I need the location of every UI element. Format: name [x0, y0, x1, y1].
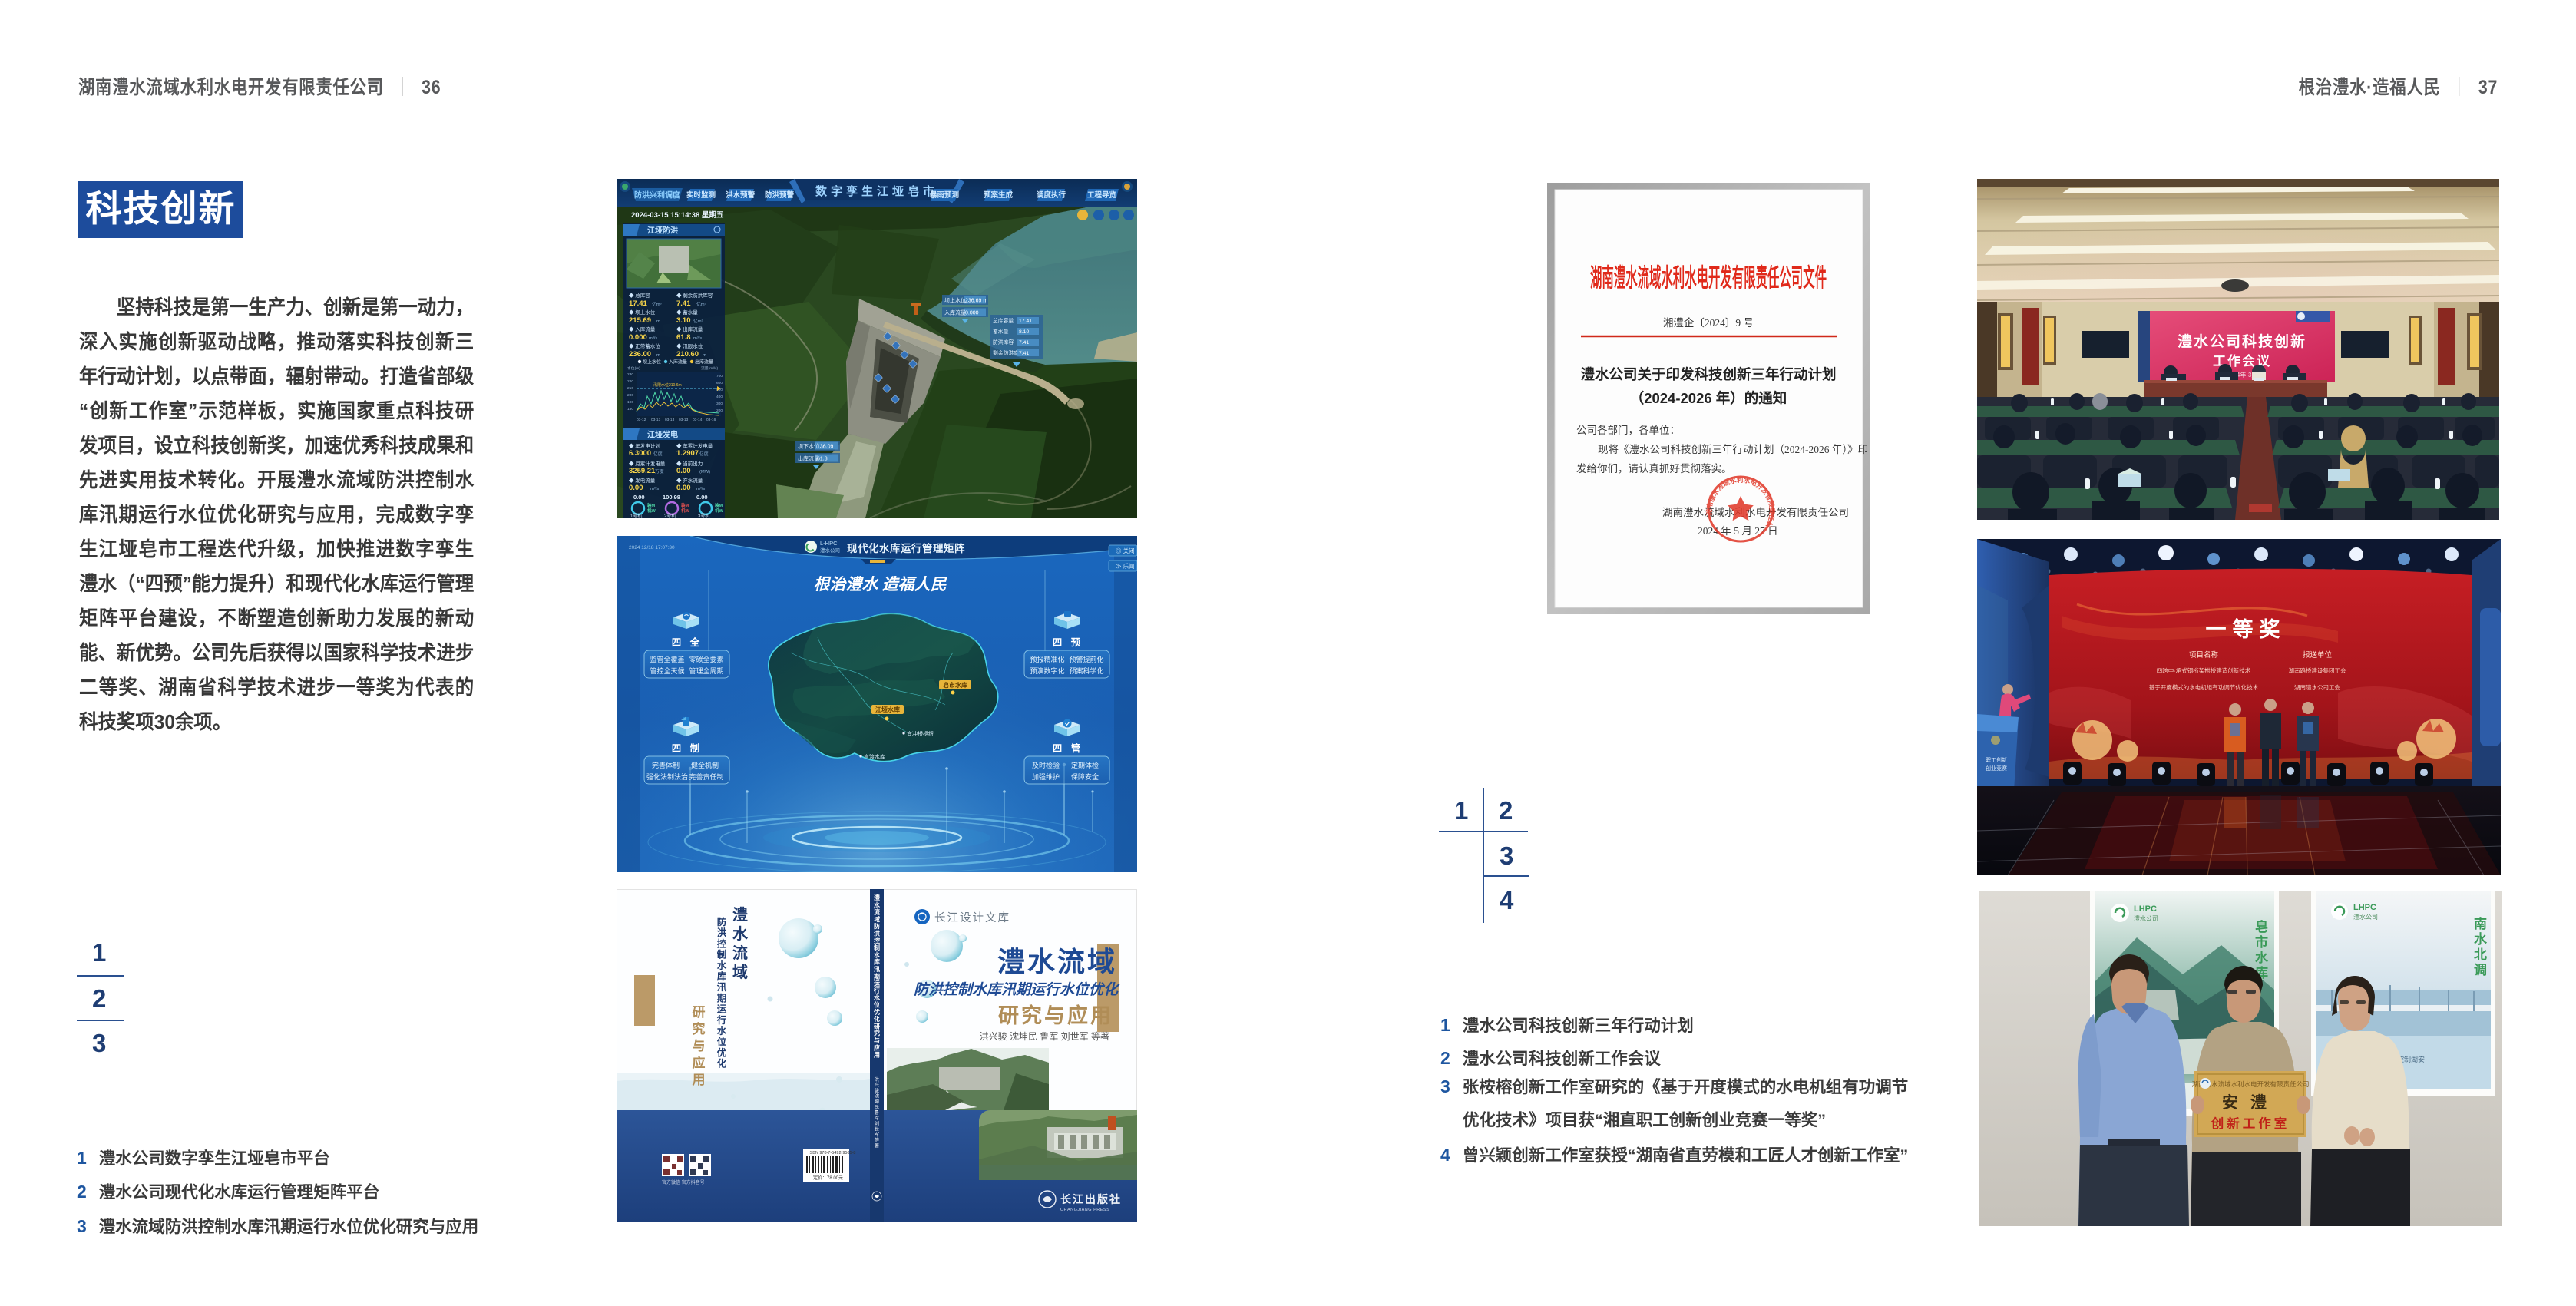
svg-text:1号机: 1号机: [630, 513, 642, 518]
svg-text:03-16: 03-16: [706, 418, 716, 422]
svg-text:03-13: 03-13: [665, 418, 675, 422]
svg-text:澧水公司: 澧水公司: [820, 547, 840, 554]
svg-text:机W: 机W: [680, 508, 690, 514]
svg-text:◆ 蓄水量: ◆ 蓄水量: [676, 309, 698, 316]
svg-text:L-HPC: L-HPC: [820, 540, 838, 547]
svg-text:四 制: 四 制: [672, 742, 703, 754]
svg-text:190: 190: [627, 400, 633, 405]
svg-text:水位(m): 水位(m): [627, 365, 640, 371]
svg-text:澧水公司科技创新: 澧水公司科技创新: [2178, 332, 2306, 350]
svg-text:m³/s: m³/s: [649, 336, 657, 341]
svg-text:(MW): (MW): [699, 470, 710, 474]
svg-text:实时监测: 实时监测: [686, 190, 716, 200]
svg-text:◆ 正常蓄水位: ◆ 正常蓄水位: [629, 342, 660, 349]
svg-text:官渡水库: 官渡水库: [864, 753, 885, 760]
svg-text:装M: 装M: [647, 502, 656, 508]
svg-text:◎ 关闭: ◎ 关闭: [1116, 547, 1135, 554]
svg-text:215.69: 215.69: [629, 316, 651, 325]
svg-text:根治澧水 造福人民: 根治澧水 造福人民: [813, 575, 947, 593]
svg-text:健全机制: 健全机制: [691, 761, 719, 769]
svg-text:坝上水位: 坝上水位: [944, 297, 966, 304]
svg-text:2024-03-15 15:14:38 星期五: 2024-03-15 15:14:38 星期五: [631, 210, 724, 220]
svg-text:210.60: 210.60: [676, 350, 699, 359]
svg-text:江垭发电: 江垭发电: [647, 430, 678, 440]
svg-text:3259.21: 3259.21: [629, 467, 656, 475]
svg-text:研究与应用: 研究与应用: [998, 1003, 1113, 1027]
svg-text:报送单位: 报送单位: [2303, 650, 2333, 660]
svg-text:监管全覆盖: 监管全覆盖: [650, 655, 684, 663]
svg-text:◆ 发电流量: ◆ 发电流量: [629, 477, 656, 484]
svg-text:亿度: 亿度: [653, 451, 663, 457]
svg-text:600: 600: [716, 381, 723, 385]
svg-text:江垭防洪: 江垭防洪: [647, 226, 678, 236]
svg-text:220: 220: [627, 379, 633, 384]
svg-text:03-14: 03-14: [693, 418, 703, 422]
svg-text:四 管: 四 管: [1053, 742, 1083, 754]
svg-text:定期体检: 定期体检: [1071, 761, 1099, 769]
svg-text:2024 12/18 17:07:30: 2024 12/18 17:07:30: [629, 545, 675, 551]
svg-text:预报精准化: 预报精准化: [1030, 655, 1064, 663]
svg-text:装M: 装M: [715, 502, 723, 508]
svg-text:236.00: 236.00: [629, 350, 651, 359]
svg-text:ISBN 978-7-5492-9565-8: ISBN 978-7-5492-9565-8: [809, 1151, 855, 1156]
svg-text:LHPC: LHPC: [2353, 903, 2376, 912]
svg-text:0.00: 0.00: [676, 484, 691, 492]
svg-text:0.000: 0.000: [965, 311, 979, 316]
svg-text:亿m³: 亿m³: [696, 301, 706, 307]
svg-text:◆ 剩余防洪库容: ◆ 剩余防洪库容: [676, 292, 713, 299]
svg-text:湖南澧水公司工会: 湖南澧水公司工会: [2294, 683, 2340, 691]
svg-text:装M: 装M: [681, 502, 689, 508]
svg-text:坝下水位: 坝下水位: [798, 443, 819, 450]
svg-text:基于开度模式的水电机组有功调节优化技术: 基于开度模式的水电机组有功调节优化技术: [2149, 683, 2259, 691]
svg-text:m: m: [703, 353, 706, 358]
svg-text:坝上水位: 坝上水位: [643, 359, 661, 365]
svg-text:暴雨预测: 暴雨预测: [929, 190, 960, 200]
svg-text:03-13: 03-13: [651, 418, 661, 422]
svg-text:700: 700: [716, 374, 723, 379]
svg-text:亿m³: 亿m³: [652, 301, 662, 307]
svg-text:6.3000: 6.3000: [629, 449, 651, 458]
svg-text:m³/s: m³/s: [696, 487, 705, 491]
svg-text:防洪库容: 防洪库容: [993, 339, 1014, 346]
svg-text:长江出版社: 长江出版社: [1060, 1193, 1122, 1206]
svg-text:CHANGJIANG PRESS: CHANGJIANG PRESS: [1060, 1208, 1109, 1212]
svg-text:136.09: 136.09: [817, 445, 834, 450]
svg-text:防洪兴利调度: 防洪兴利调度: [634, 190, 681, 200]
svg-text:创业竞赛: 创业竞赛: [1986, 765, 2007, 772]
svg-text:湖南路桥建设集团工会: 湖南路桥建设集团工会: [2289, 666, 2346, 674]
svg-text:7.41: 7.41: [1019, 340, 1029, 346]
svg-text:四 全: 四 全: [672, 636, 703, 648]
svg-text:防洪控制水库汛期运行水位优化: 防洪控制水库汛期运行水位优化: [914, 981, 1120, 998]
svg-text:7.41: 7.41: [676, 299, 691, 308]
svg-text:LHPC: LHPC: [2134, 904, 2157, 914]
svg-text:研究与应用: 研究与应用: [693, 1005, 706, 1087]
svg-text:职工创新: 职工创新: [1986, 756, 2007, 763]
svg-text:防洪预警: 防洪预警: [765, 190, 795, 200]
svg-text:≫ 乐闻: ≫ 乐闻: [1116, 562, 1135, 570]
svg-text:0.00: 0.00: [696, 494, 708, 501]
svg-text:工程导览: 工程导览: [1087, 190, 1117, 200]
svg-text:0.00: 0.00: [676, 467, 691, 475]
svg-text:m³/s: m³/s: [693, 336, 702, 341]
svg-text:现代化水库运行管理矩阵: 现代化水库运行管理矩阵: [847, 542, 965, 554]
svg-text:预警提前化: 预警提前化: [1069, 655, 1103, 663]
svg-text:61.8: 61.8: [676, 333, 691, 342]
svg-text:入库流量: 入库流量: [669, 359, 687, 365]
svg-text:亿度: 亿度: [699, 451, 709, 457]
svg-text:流量(m³/s): 流量(m³/s): [701, 365, 719, 371]
svg-text:及时检验: 及时检验: [1032, 761, 1060, 769]
svg-text:0.00: 0.00: [633, 494, 645, 501]
svg-text:2号机: 2号机: [664, 513, 676, 518]
svg-text:管理全周期: 管理全周期: [689, 666, 723, 675]
svg-text:项目名称: 项目名称: [2189, 650, 2219, 660]
svg-text:亿m³: 亿m³: [693, 318, 703, 324]
svg-text:机W: 机W: [714, 508, 724, 514]
svg-text:发给你们，请认真抓好贯彻落实。: 发给你们，请认真抓好贯彻落实。: [1576, 463, 1732, 474]
svg-text:保障安全: 保障安全: [1071, 772, 1099, 781]
svg-text:总库容量: 总库容量: [993, 317, 1014, 324]
svg-text:澧水公司: 澧水公司: [2353, 913, 2378, 921]
svg-text:调度执行: 调度执行: [1037, 190, 1066, 200]
svg-text:7.41: 7.41: [1019, 351, 1029, 356]
svg-text:澧水流域防洪控制水库汛期运行水位优化研究与应用: 澧水流域防洪控制水库汛期运行水位优化研究与应用: [873, 894, 881, 1059]
svg-text:机W: 机W: [646, 508, 656, 514]
svg-text:洪水预警: 洪水预警: [726, 190, 756, 200]
svg-text:17.41: 17.41: [629, 299, 647, 308]
svg-text:◆ 坝上水位: ◆ 坝上水位: [629, 309, 656, 316]
svg-text:8.10: 8.10: [1019, 329, 1029, 335]
svg-text:汛限水位210.6m: 汛限水位210.6m: [653, 382, 682, 388]
svg-text:四跨中·承式钢桁架拱桥建造创新技术: 四跨中·承式钢桁架拱桥建造创新技术: [2157, 666, 2251, 674]
svg-text:宜冲桥枢纽: 宜冲桥枢纽: [907, 730, 934, 737]
svg-text:m: m: [656, 353, 660, 358]
svg-text:17.41: 17.41: [1019, 319, 1032, 324]
svg-text:澧水公司关于印发科技创新三年行动计划: 澧水公司关于印发科技创新三年行动计划: [1580, 366, 1836, 382]
svg-text:◆ 出库流量: ◆ 出库流量: [676, 326, 703, 332]
svg-text:61.8: 61.8: [817, 457, 828, 462]
svg-text:澧水公司: 澧水公司: [2134, 914, 2158, 922]
svg-text:2024 年 5 月 27 日: 2024 年 5 月 27 日: [1698, 525, 1778, 537]
svg-text:加强维护: 加强维护: [1032, 772, 1060, 781]
svg-text:◆ 月累计发电量: ◆ 月累计发电量: [629, 460, 666, 467]
svg-text:出库流量: 出库流量: [695, 359, 713, 365]
svg-text:完善体制: 完善体制: [652, 761, 680, 769]
svg-text:（2024-2026 年）的通知: （2024-2026 年）的通知: [1630, 390, 1787, 406]
svg-text:◆ 总库容: ◆ 总库容: [629, 292, 650, 299]
svg-text:数字孪生江垭皂市: 数字孪生江垭皂市: [815, 184, 938, 198]
svg-text:创新工作室: 创新工作室: [2211, 1116, 2290, 1131]
svg-text:零碳全要素: 零碳全要素: [689, 655, 723, 663]
svg-text:◆ 弃水流量: ◆ 弃水流量: [676, 477, 703, 484]
svg-text:管控全天候: 管控全天候: [650, 666, 684, 675]
svg-text:湖南澧水流域水利水电开发有限责任公司: 湖南澧水流域水利水电开发有限责任公司: [1662, 507, 1849, 518]
svg-text:0.00: 0.00: [629, 484, 643, 492]
svg-text:入库流量: 入库流量: [944, 309, 966, 316]
svg-text:官方微信 官方抖音号: 官方微信 官方抖音号: [662, 1179, 705, 1185]
svg-text:0.000: 0.000: [629, 333, 647, 342]
svg-text:湖南澧水流域水利水电开发有限责任公司文件: 湖南澧水流域水利水电开发有限责任公司文件: [1590, 263, 1827, 292]
svg-text:236.69 m: 236.69 m: [965, 299, 987, 304]
svg-text:完善责任制: 完善责任制: [689, 772, 723, 781]
svg-text:四 预: 四 预: [1053, 637, 1083, 648]
svg-text:长江设计文库: 长江设计文库: [934, 911, 1010, 924]
svg-text:400: 400: [716, 395, 723, 399]
svg-text:预案科学化: 预案科学化: [1069, 666, 1103, 675]
svg-text:◆ 汛限水位: ◆ 汛限水位: [676, 342, 703, 349]
svg-text:预案生成: 预案生成: [984, 190, 1014, 200]
svg-text:公司各部门，各单位：: 公司各部门，各单位：: [1576, 425, 1680, 436]
svg-text:湘澧企〔2024〕9 号: 湘澧企〔2024〕9 号: [1663, 316, 1754, 329]
svg-text:定价：78.00元: 定价：78.00元: [813, 1175, 843, 1181]
svg-text:蓄水量: 蓄水量: [993, 328, 1009, 335]
svg-text:预演数字化: 预演数字化: [1030, 666, 1064, 675]
svg-text:230: 230: [627, 372, 633, 377]
svg-text:3.10: 3.10: [676, 316, 691, 325]
svg-text:◆ 年发电计划: ◆ 年发电计划: [629, 442, 660, 449]
svg-text:200: 200: [627, 393, 633, 398]
svg-text:m: m: [656, 319, 660, 324]
svg-text:03-12: 03-12: [637, 418, 646, 422]
svg-text:皂市水库: 皂市水库: [943, 681, 967, 689]
svg-text:◆ 入库流量: ◆ 入库流量: [629, 326, 656, 332]
svg-text:洪兴骏沈坤民鲁军刘世军等著: 洪兴骏沈坤民鲁军刘世军等著: [875, 1076, 879, 1149]
svg-text:现将《澧水公司科技创新三年行动计划（2024-2026 年）: 现将《澧水公司科技创新三年行动计划（2024-2026 年）》印: [1598, 444, 1868, 455]
svg-text:300: 300: [716, 402, 723, 406]
svg-text:1.2907: 1.2907: [676, 449, 699, 458]
svg-text:3号机: 3号机: [698, 513, 709, 518]
svg-text:180: 180: [627, 407, 633, 412]
svg-text:出库流量: 出库流量: [798, 455, 819, 462]
svg-text:一等奖: 一等奖: [2206, 617, 2287, 641]
svg-text:安澧: 安澧: [2222, 1093, 2279, 1112]
svg-text:200: 200: [716, 408, 723, 413]
svg-text:210: 210: [627, 386, 633, 391]
svg-text:澧水流域: 澧水流域: [997, 946, 1117, 977]
svg-text:万度: 万度: [655, 468, 664, 474]
svg-text:洪兴骏 沈坤民 鲁军 刘世军 等著: 洪兴骏 沈坤民 鲁军 刘世军 等著: [980, 1030, 1109, 1042]
svg-text:强化法制法治: 强化法制法治: [646, 772, 688, 781]
svg-text:100.98: 100.98: [663, 494, 680, 501]
svg-text:03-13: 03-13: [679, 418, 689, 422]
svg-text:m³/s: m³/s: [650, 487, 659, 491]
svg-text:◆ 当前出力: ◆ 当前出力: [676, 460, 703, 467]
svg-text:防洪控制水库汛期运行水位优化: 防洪控制水库汛期运行水位优化: [716, 916, 727, 1070]
svg-text:◆ 年累计发电量: ◆ 年累计发电量: [676, 442, 713, 449]
svg-text:江垭水库: 江垭水库: [875, 706, 900, 713]
